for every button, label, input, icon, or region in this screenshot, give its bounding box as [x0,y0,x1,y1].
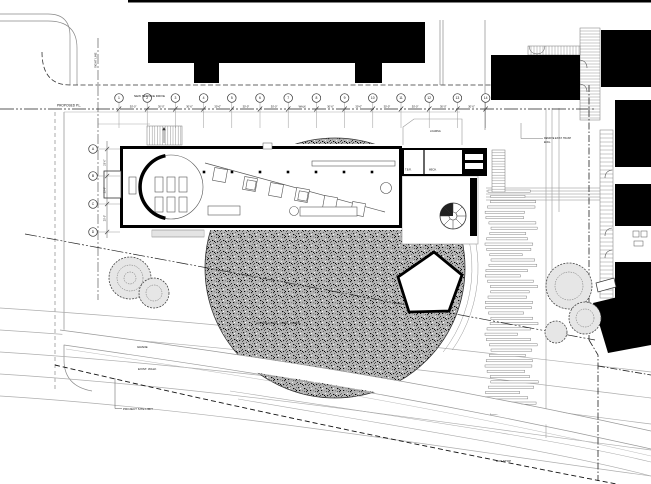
paving-note-label: EXPOSED AGG. CONC. PAVING [256,321,302,325]
project-site-limit-label: PROJECT SITE LIMIT [123,407,153,411]
grid-bubble-col-label: 1 [118,96,120,100]
northeast-buildings [491,28,651,130]
bench [300,207,357,216]
bay-dimension-label: 30'-0" [412,104,419,108]
display-case [312,161,395,166]
new-service-drive-label: NEW SERVICE DRIVE [134,94,165,98]
elevator-shaft [462,150,486,175]
grid-bubble-col-label: 10 [371,96,375,100]
row-dimension-label: 25'-0" [104,215,107,221]
site-limit-leader-line [115,378,122,409]
spiral-stair-icon [440,203,466,229]
bay-dimension-label: 30'-0" [327,104,334,108]
existing-north-building [148,22,425,83]
grid-bubble-col-label: 14 [484,96,488,100]
drawing-top-border [128,0,651,3]
room-label-mech: MECH. [429,169,437,172]
remove-note-line1: REMOVE EXIST. TRASH [544,137,571,140]
note-leader-line [521,123,543,139]
bay-dimension-label: 30'-0" [243,104,250,108]
bay-dimension-label: 30'-0" [214,104,221,108]
site-plan-svg: 1234567891011121314 30'-0"30'-0"30'-0"30… [0,0,651,484]
loading-label: LOADING [430,130,441,133]
grade-label: GRADE [137,345,148,349]
round-table [381,183,392,194]
room-label-tbr: T.B.R. [405,169,412,172]
row-dimension-label: 25'-0" [104,159,107,165]
bus-stop-label: BUS STOP [496,459,511,463]
tree-icon [545,263,601,343]
grid-bubble-col-label: 13 [456,96,460,100]
grid-bubble-col-label: 5 [231,96,233,100]
grid-bubble-col-label: 6 [259,96,261,100]
site-plan-drawing: 1234567891011121314 30'-0"30'-0"30'-0"30… [0,0,651,484]
bay-dimension-label: 30'-0" [186,104,193,108]
planting-strip [152,230,204,237]
west-vestibule [104,171,121,198]
bay-dimension-label: WALK [299,104,307,108]
bay-dimension-label: 30'-0" [158,104,165,108]
spiral-court [402,176,478,244]
row-dimension-label: 25'-0" [104,187,107,193]
grid-bubble-col-label: 11 [399,96,403,100]
bay-dimension-label: 30'-0" [271,104,278,108]
court-east-wall [470,178,477,236]
grid-bubble-col-label: 3 [174,96,176,100]
tree-icon [109,257,169,308]
grid-bubble-col-label: 8 [315,96,317,100]
exist-walk-label: EXIST. WALK [138,367,156,371]
grid-bubble-col-label: 4 [203,96,205,100]
bay-dimension-label: 30'-0" [355,104,362,108]
proposed-pl-label: PROPOSED P.L. [57,104,81,108]
bench [208,206,240,215]
grid-bubble-col-label: 12 [427,96,431,100]
bay-dimension-label: 30'-0" [130,104,137,108]
main-building [104,119,505,244]
stair-icon [492,150,505,192]
remove-note-line2: ENCL. [544,141,551,144]
terrace-steps [485,190,538,415]
sight-line-label: SIGHT LINE [94,52,98,68]
grid-bubble-col-label: 7 [287,96,289,100]
bay-dimension-label: 30'-0" [468,104,475,108]
bay-dimension-label: 30'-0" [384,104,391,108]
grid-bubble-col-label: 9 [344,96,346,100]
bay-dimension-label: 30'-0" [440,104,447,108]
